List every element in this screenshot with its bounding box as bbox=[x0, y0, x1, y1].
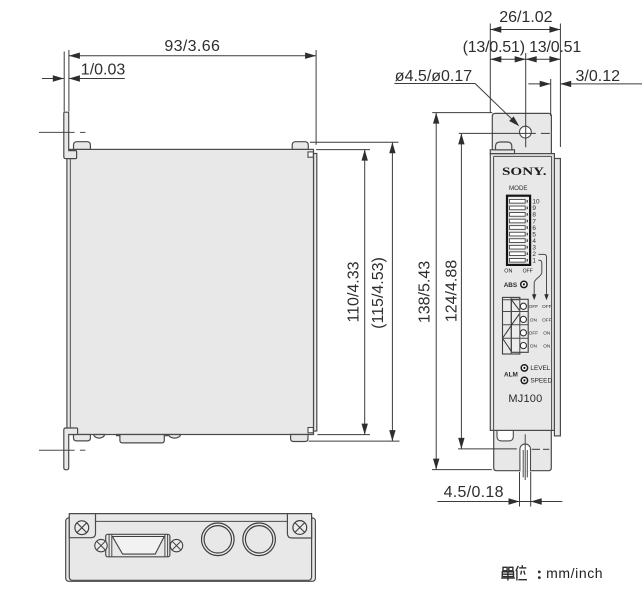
svg-text:OFF: OFF bbox=[542, 317, 552, 323]
svg-text:124/4.88: 124/4.88 bbox=[444, 260, 461, 322]
svg-text:OFF: OFF bbox=[523, 268, 533, 274]
svg-text:SPEED: SPEED bbox=[530, 378, 552, 385]
svg-text:ALM: ALM bbox=[504, 372, 518, 379]
svg-text:(13/0.51) 13/0.51: (13/0.51) 13/0.51 bbox=[463, 39, 582, 56]
svg-text:1: 1 bbox=[532, 258, 536, 265]
svg-text:1/0.03: 1/0.03 bbox=[81, 61, 126, 78]
svg-text:ON: ON bbox=[530, 344, 538, 350]
svg-text:LEVEL: LEVEL bbox=[530, 365, 550, 372]
svg-text:ON: ON bbox=[504, 268, 512, 274]
svg-text:SONY.: SONY. bbox=[502, 166, 547, 178]
svg-text:MJ100: MJ100 bbox=[508, 393, 542, 405]
svg-text:OFF: OFF bbox=[542, 304, 552, 310]
svg-text:4.5/0.18: 4.5/0.18 bbox=[444, 484, 504, 501]
svg-text:ABS: ABS bbox=[504, 282, 518, 289]
svg-text:ON: ON bbox=[543, 331, 551, 337]
svg-text:3/0.12: 3/0.12 bbox=[576, 68, 621, 85]
svg-text:110/4.33: 110/4.33 bbox=[346, 261, 363, 322]
svg-text:mm/inch: mm/inch bbox=[546, 565, 603, 581]
svg-text:ø4.5/ø0.17: ø4.5/ø0.17 bbox=[395, 68, 472, 85]
svg-text:93/3.66: 93/3.66 bbox=[164, 38, 220, 55]
svg-text:138/5.43: 138/5.43 bbox=[417, 261, 434, 323]
svg-text:ON: ON bbox=[530, 317, 538, 323]
svg-text:26/1.02: 26/1.02 bbox=[499, 9, 552, 26]
svg-text:OFF: OFF bbox=[529, 331, 539, 337]
svg-text:OFF: OFF bbox=[529, 304, 539, 310]
svg-text:MODE: MODE bbox=[509, 185, 528, 192]
svg-text:ON: ON bbox=[543, 344, 551, 350]
svg-text:(115/4.53): (115/4.53) bbox=[370, 257, 387, 329]
